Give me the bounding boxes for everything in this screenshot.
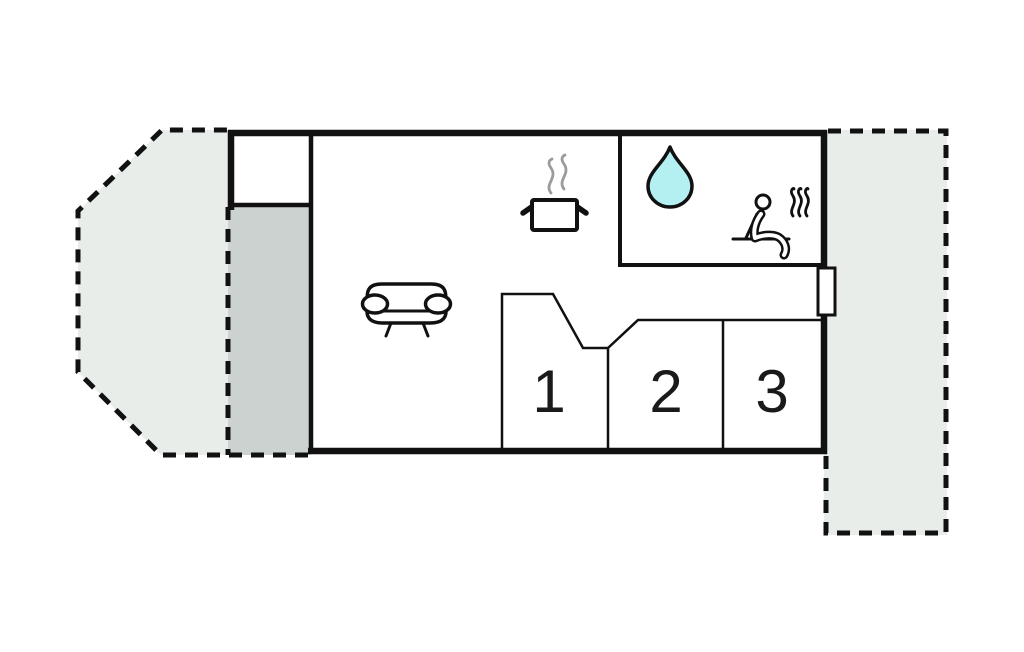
- bedroom-2-label: 2: [649, 362, 682, 422]
- porch-area: [228, 207, 311, 455]
- exterior-wall: [228, 130, 827, 454]
- bedroom-3-label: 3: [755, 362, 788, 422]
- sauna-head: [756, 195, 770, 209]
- sofa-legs: [386, 323, 428, 336]
- pot-body: [532, 200, 577, 230]
- sofa-armrest-right: [426, 295, 451, 313]
- icon-layer: [363, 147, 809, 336]
- cooking-pot-icon: [523, 155, 586, 230]
- heat-wave-1: [791, 188, 794, 216]
- sauna-heat-waves: [791, 188, 808, 216]
- water-drop-icon: [648, 147, 692, 207]
- sofa-icon: [363, 284, 451, 336]
- heat-wave-3: [805, 188, 808, 216]
- steam-line-left: [549, 159, 553, 193]
- entrance-door: [818, 268, 835, 315]
- right-terrace-area: [824, 130, 947, 535]
- floor-plan-canvas: 1 2 3: [0, 0, 1024, 652]
- left-terrace-area: [78, 130, 228, 455]
- sauna-person-icon: [733, 188, 808, 255]
- sofa-armrest-left: [363, 295, 388, 313]
- steam-line-right: [562, 155, 566, 189]
- floor-plan-drawing: [0, 0, 1024, 652]
- bedroom-1-label: 1: [532, 362, 565, 422]
- steam-lines: [549, 155, 566, 193]
- heat-wave-2: [798, 188, 801, 216]
